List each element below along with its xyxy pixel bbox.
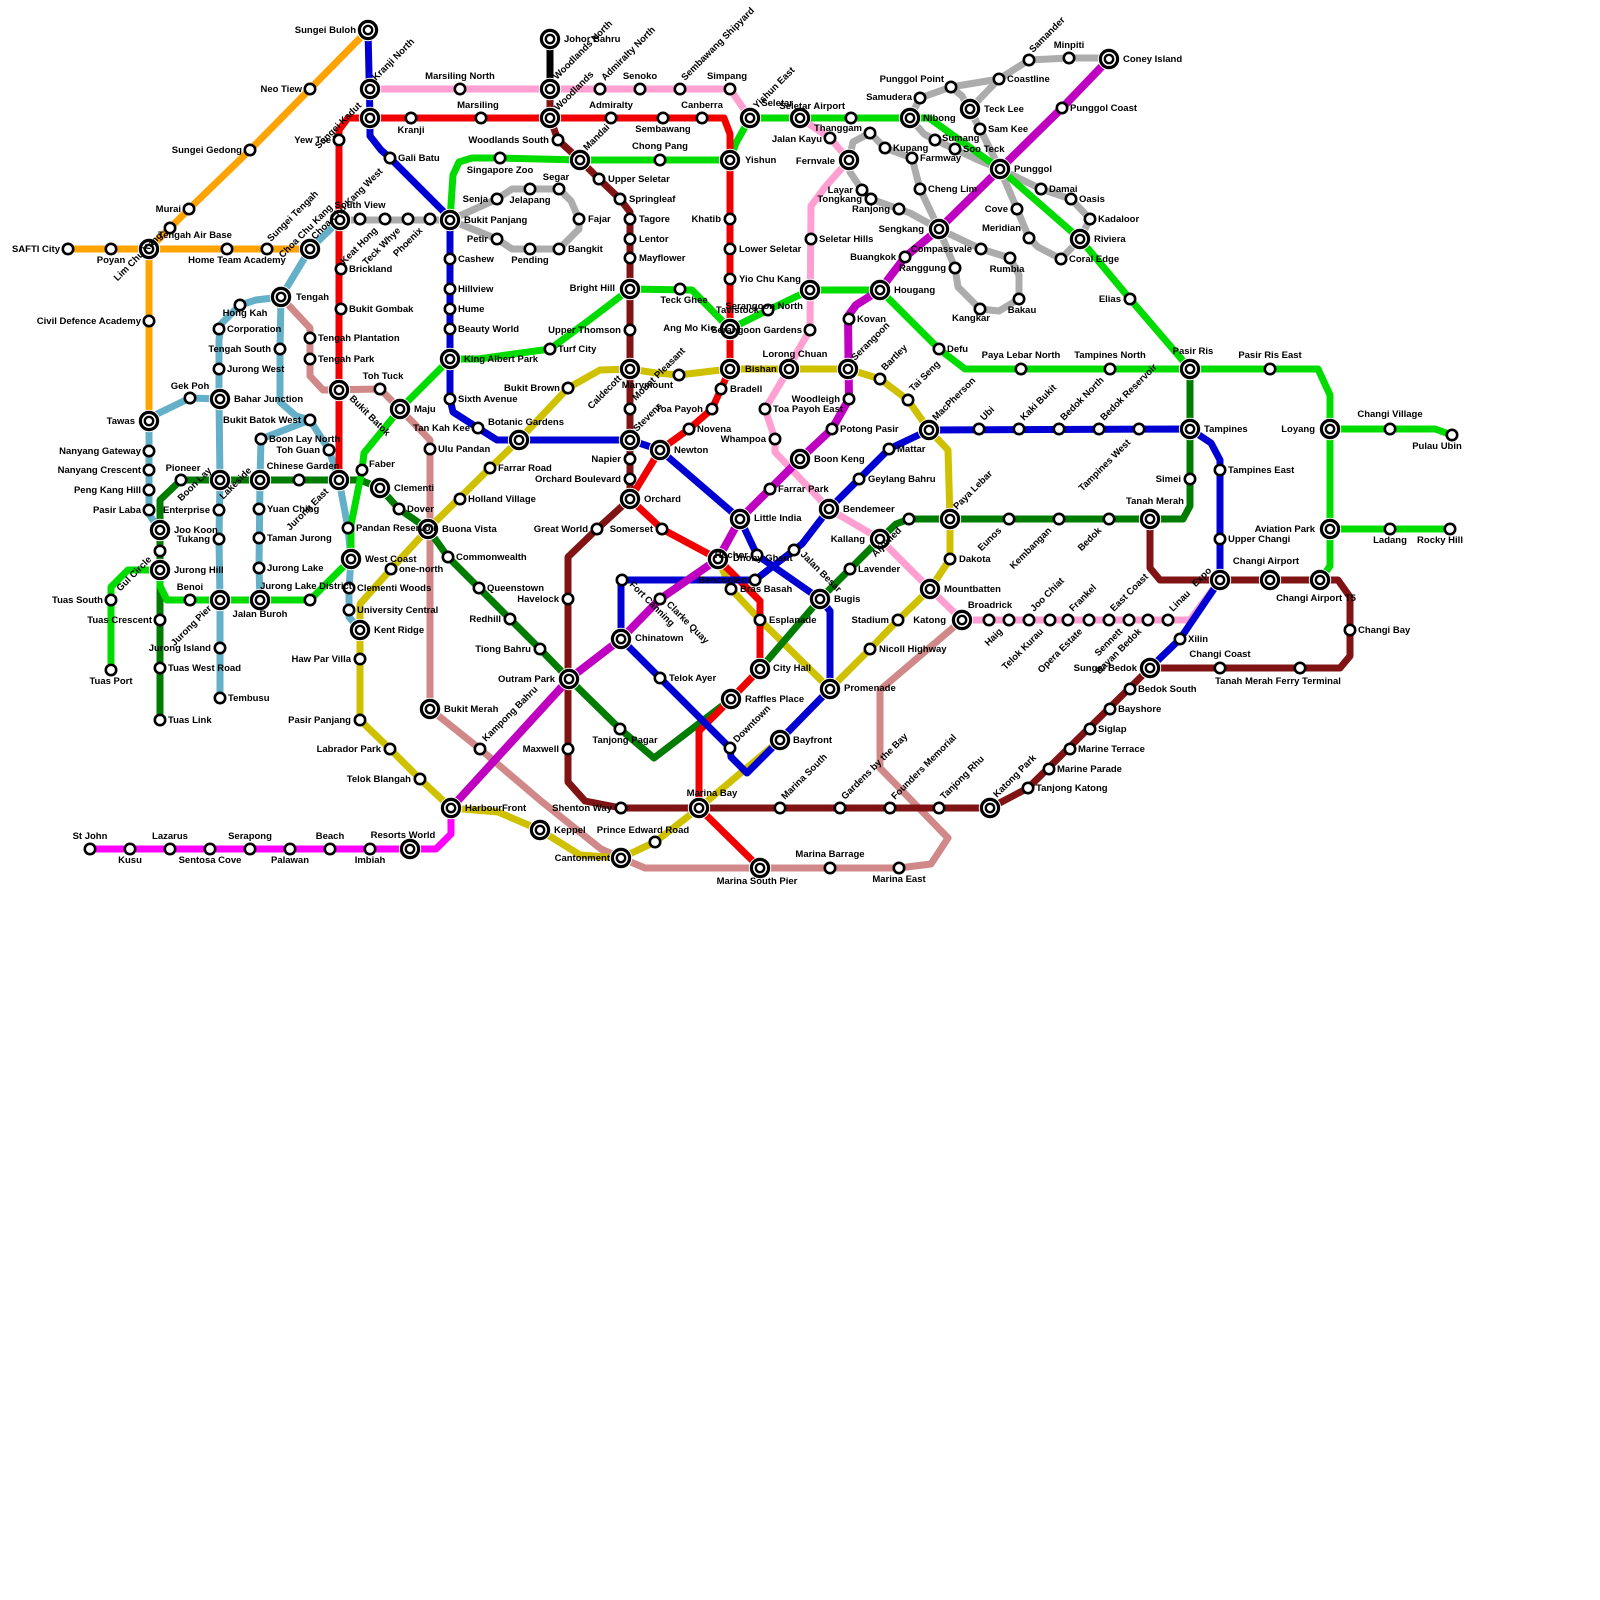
station-nanyang-crescent[interactable] [144, 465, 154, 475]
station-label-teck-lee: Teck Lee [984, 104, 1024, 115]
station-tampines[interactable] [1179, 418, 1201, 440]
station-outram-park[interactable] [558, 668, 580, 690]
station-pandan-reservoir[interactable] [343, 523, 353, 533]
station-admiralty-north[interactable] [595, 84, 605, 94]
station-jurong-pier[interactable] [209, 589, 231, 611]
station-tuas-crescent[interactable] [155, 615, 165, 625]
station-farrar-road[interactable] [485, 463, 495, 473]
station-tanjong-rhu[interactable] [934, 803, 944, 813]
station-tagore[interactable] [625, 214, 635, 224]
station-buangkok[interactable] [900, 252, 910, 262]
station-sungei-gedong[interactable] [245, 145, 255, 155]
interchange-marker-inner-ring [844, 365, 852, 373]
station-marker [63, 244, 73, 254]
station-lentor[interactable] [625, 234, 635, 244]
station-dakota[interactable] [945, 554, 955, 564]
station-lavender[interactable] [845, 564, 855, 574]
station-holland-village[interactable] [455, 494, 465, 504]
station-label-geylang-bahru: Geylang Bahru [868, 474, 936, 485]
station-kent-ridge[interactable] [349, 619, 371, 641]
station-marine-terrace[interactable] [1065, 744, 1075, 754]
station-peng-kang-hill[interactable] [144, 485, 154, 495]
station-marsiling-north[interactable] [455, 84, 465, 94]
station-esplanade[interactable] [755, 615, 765, 625]
station-benoi[interactable] [185, 595, 195, 605]
station-bedok-south[interactable] [1125, 684, 1135, 694]
station-punggol-point[interactable] [946, 82, 956, 92]
station-oasis[interactable] [1066, 194, 1076, 204]
station-orchard[interactable] [619, 488, 641, 510]
station-jurong-lake-district[interactable] [305, 595, 315, 605]
station-pasir-laba[interactable] [144, 505, 154, 515]
station-serangoon-gardens[interactable] [805, 325, 815, 335]
station-broadrick[interactable] [984, 615, 994, 625]
station-ranggung[interactable] [950, 263, 960, 273]
station-haig[interactable] [1004, 615, 1014, 625]
station-teck-whye[interactable] [403, 214, 413, 224]
station-home-team-academy[interactable] [222, 244, 232, 254]
station-joo-koon[interactable] [149, 519, 171, 541]
station-tanah-merah[interactable] [1139, 508, 1161, 530]
station-changi-airport[interactable] [1259, 569, 1281, 591]
station-haw-par-villa[interactable] [355, 654, 365, 664]
station-seletar-airport[interactable] [846, 113, 856, 123]
station-jurong-lake[interactable] [254, 563, 264, 573]
station-redhill[interactable] [505, 614, 515, 624]
station-ladang[interactable] [1385, 524, 1395, 534]
station-paya-lebar-north[interactable] [1016, 364, 1026, 374]
station-hougang[interactable] [869, 279, 891, 301]
station-marymount[interactable] [674, 370, 684, 380]
station-tanjong-pagar[interactable] [615, 724, 625, 734]
station-tampines-east[interactable] [1215, 465, 1225, 475]
station-tengah-park[interactable] [305, 354, 315, 364]
station-bayfront[interactable] [769, 729, 791, 751]
station-aviation-park[interactable] [1319, 518, 1341, 540]
station-defu[interactable] [934, 344, 944, 354]
station-lorong-chuan[interactable] [778, 358, 800, 380]
station-changi-village[interactable] [1385, 424, 1395, 434]
station-bukit-panjang[interactable] [439, 209, 461, 231]
station-toh-guan[interactable] [324, 445, 334, 455]
station-yuan-ching[interactable] [254, 504, 264, 514]
station-napier[interactable] [625, 454, 635, 464]
station-pulau-ubin[interactable] [1447, 430, 1457, 440]
station-bedok-north[interactable] [1054, 424, 1064, 434]
station-south-view[interactable] [355, 214, 365, 224]
station-sungei-tengah[interactable] [262, 244, 272, 254]
station-havelock[interactable] [563, 594, 573, 604]
station-maju[interactable] [389, 398, 411, 420]
station-tanjong-katong[interactable] [1023, 783, 1033, 793]
station-university-central[interactable] [344, 605, 354, 615]
station-one-north[interactable] [386, 564, 396, 574]
station-changi-bay[interactable] [1345, 625, 1355, 635]
station-label-bukit-brown: Bukit Brown [504, 383, 560, 394]
station-label-tengah: Tengah [296, 292, 329, 303]
station-queenstown[interactable] [474, 583, 484, 593]
station-palawan[interactable] [285, 844, 295, 854]
station-kadaloor[interactable] [1085, 214, 1095, 224]
station-springleaf[interactable] [615, 194, 625, 204]
station-sungei-kadut[interactable] [359, 107, 381, 129]
station-label-marsiling: Marsiling [457, 100, 499, 111]
station-marker [1085, 724, 1095, 734]
station-bayan-bedok[interactable] [1143, 615, 1153, 625]
station-potong-pasir[interactable] [827, 424, 837, 434]
station-kaki-bukit[interactable] [1014, 424, 1024, 434]
station-geylang-bahru[interactable] [854, 474, 864, 484]
station-label-poyan: Poyan [97, 255, 126, 266]
station-xilin[interactable] [1175, 634, 1185, 644]
station-label-bras-basah: Bras Basah [740, 584, 792, 595]
station-cove[interactable] [1012, 204, 1022, 214]
station-telok-blangah[interactable] [415, 774, 425, 784]
station-neo-tiew[interactable] [305, 84, 315, 94]
station-kembangan[interactable] [1054, 514, 1064, 524]
station-kampong-bahru[interactable] [475, 744, 485, 754]
station-eunos[interactable] [1004, 514, 1014, 524]
station-whampoa[interactable] [770, 434, 780, 444]
station-stadium[interactable] [893, 615, 903, 625]
station-yio-chu-kang[interactable] [725, 274, 735, 284]
station-little-india[interactable] [729, 508, 751, 530]
station-sixth-avenue[interactable] [445, 394, 455, 404]
station-cantonment[interactable] [610, 847, 632, 869]
station-bangkit[interactable] [554, 244, 564, 254]
station-thanggam[interactable] [865, 128, 875, 138]
station-marker [262, 244, 272, 254]
station-rumbia[interactable] [1005, 253, 1015, 263]
station-murai[interactable] [184, 204, 194, 214]
station-punggol[interactable] [989, 158, 1011, 180]
station-bedok-reservoir[interactable] [1094, 424, 1104, 434]
station-orchard-boulevard[interactable] [625, 474, 635, 484]
station-teck-lee[interactable] [959, 98, 981, 120]
station-hume[interactable] [445, 304, 455, 314]
station-civil-defence-academy[interactable] [144, 316, 154, 326]
station-marine-parade[interactable] [1044, 764, 1054, 774]
station-segar[interactable] [554, 184, 564, 194]
station-upper-changi[interactable] [1215, 534, 1225, 544]
station-tiong-bahru[interactable] [535, 644, 545, 654]
station-fernvale[interactable] [838, 149, 860, 171]
station-pasir-panjang[interactable] [355, 715, 365, 725]
station-pasir-ris-east[interactable] [1265, 364, 1275, 374]
station-tai-seng[interactable] [903, 395, 913, 405]
station-upper-seletar[interactable] [594, 174, 604, 184]
station-tuas-south[interactable] [106, 595, 116, 605]
station-cashew[interactable] [445, 254, 455, 264]
station-marsiling[interactable] [476, 113, 486, 123]
station-chinese-garden[interactable] [294, 475, 304, 485]
station-label-pasir-ris: Pasir Ris [1173, 346, 1214, 357]
station-frankel[interactable] [1063, 615, 1073, 625]
station-bukit-gombak[interactable] [336, 304, 346, 314]
station-opera-estate[interactable] [1084, 615, 1094, 625]
station-tongkang[interactable] [866, 194, 876, 204]
station-lazarus[interactable] [165, 844, 175, 854]
station-bartley[interactable] [875, 374, 885, 384]
station-gali-batu[interactable] [385, 153, 395, 163]
station-singapore-zoo[interactable] [495, 153, 505, 163]
station-johor-bahru[interactable] [539, 28, 561, 50]
station-tampines-north[interactable] [1105, 364, 1115, 374]
station-kovan[interactable] [844, 314, 854, 324]
station-fort-canning[interactable] [617, 575, 627, 585]
station-bukit-merah[interactable] [419, 698, 441, 720]
station-nibong[interactable] [899, 107, 921, 129]
station-king-albert-park[interactable] [439, 348, 461, 370]
station-poyan[interactable] [106, 244, 116, 254]
station-kusu[interactable] [125, 844, 135, 854]
station-taman-jurong[interactable] [254, 533, 264, 543]
station-mattar[interactable] [884, 444, 894, 454]
station-keppel[interactable] [529, 819, 551, 841]
station-corporation[interactable] [214, 324, 224, 334]
station-simpang[interactable] [725, 84, 735, 94]
station-tanah-merah-ferry-terminal[interactable] [1295, 663, 1305, 673]
station-label-coral-edge: Coral Edge [1069, 254, 1119, 265]
station-punggol-coast[interactable] [1057, 103, 1067, 113]
station-sentosa-cove[interactable] [205, 844, 215, 854]
station-serapong[interactable] [245, 844, 255, 854]
station-seletar-hills[interactable] [806, 234, 816, 244]
station-label-maxwell: Maxwell [523, 744, 559, 755]
station-rocky-hill[interactable] [1445, 524, 1455, 534]
station-woodleigh[interactable] [844, 394, 854, 404]
station-novena[interactable] [684, 424, 694, 434]
station-senja[interactable] [492, 194, 502, 204]
station-minpiti[interactable] [1064, 53, 1074, 63]
station-east-coast[interactable] [1104, 615, 1114, 625]
station-farrar-park[interactable] [765, 484, 775, 494]
station-marina-barrage[interactable] [825, 863, 835, 873]
station-west-coast[interactable] [340, 548, 362, 570]
station-label-marsiling-north: Marsiling North [425, 71, 495, 82]
station-chong-pang[interactable] [655, 155, 665, 165]
interchange-marker-inner-ring [335, 476, 343, 484]
station-downtown[interactable] [725, 743, 735, 753]
station-label-tengah-air-base: Tengah Air Base [158, 230, 232, 241]
station-meridian[interactable] [1024, 233, 1034, 243]
station-tampines-west[interactable] [1134, 424, 1144, 434]
station-coastline[interactable] [994, 74, 1004, 84]
station-riviera[interactable] [1069, 228, 1091, 250]
station-jurong-island[interactable] [215, 643, 225, 653]
station-promenade[interactable] [819, 678, 841, 700]
station-bukit-brown[interactable] [563, 383, 573, 393]
station-bendemeer[interactable] [818, 498, 840, 520]
station-damai[interactable] [1036, 184, 1046, 194]
station-tengah-south[interactable] [275, 344, 285, 354]
station-tengah[interactable] [270, 286, 292, 308]
station-harbourfront[interactable] [440, 797, 462, 819]
station-farmway[interactable] [907, 153, 917, 163]
station-compassvale[interactable] [976, 244, 986, 254]
station-labrador-park[interactable] [385, 744, 395, 754]
station-keat-hong[interactable] [380, 214, 390, 224]
station-turf-city[interactable] [545, 344, 555, 354]
station-jurong-west[interactable] [214, 364, 224, 374]
station-mayflower[interactable] [625, 253, 635, 263]
station-toa-payoh[interactable] [707, 404, 717, 414]
station-beach[interactable] [325, 844, 335, 854]
station-hillview[interactable] [445, 284, 455, 294]
station-label-jalan-buroh: Jalan Buroh [233, 609, 288, 620]
station-upper-thomson[interactable] [625, 325, 635, 335]
station-beauty-world[interactable] [445, 324, 455, 334]
station-mountbatten[interactable] [919, 578, 941, 600]
station-maxwell[interactable] [563, 744, 573, 754]
station-canberra[interactable] [697, 113, 707, 123]
station-tuas-link[interactable] [155, 715, 165, 725]
station-imbiah[interactable] [365, 844, 375, 854]
station-telok-ayer[interactable] [655, 673, 665, 683]
station-prince-edward-road[interactable] [650, 837, 660, 847]
station-marina-bay[interactable] [688, 797, 710, 819]
station-nicoll-highway[interactable] [865, 644, 875, 654]
station-khatib[interactable] [725, 214, 735, 224]
station-botanic-gardens[interactable] [508, 429, 530, 451]
station-toa-payoh-east[interactable] [760, 404, 770, 414]
station-bahar-junction[interactable] [209, 388, 231, 410]
station-ulu-pandan[interactable] [425, 444, 435, 454]
station-great-world[interactable] [592, 524, 602, 534]
station-mount-pleasant[interactable] [625, 404, 635, 414]
station-dover[interactable] [394, 504, 404, 514]
station-sumang[interactable] [930, 135, 940, 145]
station-bradell[interactable] [716, 384, 726, 394]
station-sengkang[interactable] [928, 218, 950, 240]
station-jalan-buroh[interactable] [249, 589, 271, 611]
station-sungei-buloh[interactable] [357, 19, 379, 41]
station-sungei-bedok[interactable] [1139, 657, 1161, 679]
station-label-sam-kee: Sam Kee [988, 124, 1028, 135]
station-senoko[interactable] [635, 84, 645, 94]
station-shenton-way[interactable] [616, 803, 626, 813]
station-enterprise[interactable] [214, 505, 224, 515]
station-nanyang-gateway[interactable] [144, 446, 154, 456]
station-simei[interactable] [1185, 474, 1195, 484]
station-jurong-east[interactable] [328, 469, 350, 491]
station-st-john[interactable] [85, 844, 95, 854]
station-marker [615, 194, 625, 204]
station-teck-ghee[interactable] [675, 284, 685, 294]
station-bright-hill[interactable] [619, 278, 641, 300]
station-katong[interactable] [951, 609, 973, 631]
station-bugis[interactable] [809, 588, 831, 610]
station-admiralty[interactable] [606, 113, 616, 123]
station-kranji[interactable] [406, 113, 416, 123]
station-tuas-port[interactable] [106, 665, 116, 675]
station-linau[interactable] [1163, 615, 1173, 625]
station-boon-keng[interactable] [789, 448, 811, 470]
station-coral-edge[interactable] [1056, 254, 1066, 264]
station-pasir-ris[interactable] [1179, 358, 1201, 380]
station-marker [866, 194, 876, 204]
station-bukit-batok-west[interactable] [305, 415, 315, 425]
station-bishan[interactable] [719, 358, 741, 380]
station-jalan-kayu[interactable] [825, 133, 835, 143]
station-label-serapong: Serapong [228, 831, 272, 842]
station-caldecott[interactable] [619, 358, 641, 380]
station-toh-tuck[interactable] [375, 384, 385, 394]
station-chinatown[interactable] [610, 628, 632, 650]
station-sennett[interactable] [1124, 615, 1134, 625]
station-gul-circle[interactable] [155, 546, 165, 556]
station-ubi[interactable] [974, 424, 984, 434]
station-boon-lay-north[interactable] [256, 434, 266, 444]
station-raffles-place[interactable] [720, 688, 742, 710]
station-bakau[interactable] [1014, 294, 1024, 304]
station-ranjong[interactable] [894, 204, 904, 214]
station-woodlands-south[interactable] [553, 135, 563, 145]
station-yishun[interactable] [719, 149, 741, 171]
station-cheng-lim[interactable] [915, 184, 925, 194]
station-founders-memorial[interactable] [885, 803, 895, 813]
station-pioneer[interactable] [176, 475, 186, 485]
station-samander[interactable] [1024, 55, 1034, 65]
station-somerset[interactable] [657, 524, 667, 534]
station-changi-coast[interactable] [1215, 663, 1225, 673]
station-resorts-world[interactable] [399, 838, 421, 860]
station-sembawang-shipyard[interactable] [675, 84, 685, 94]
station-commonwealth[interactable] [443, 552, 453, 562]
station-bedok[interactable] [1104, 514, 1114, 524]
station-label-civil-defence-academy: Civil Defence Academy [37, 316, 142, 327]
station-samudera[interactable] [915, 93, 925, 103]
station-joo-chiat[interactable] [1024, 615, 1034, 625]
station-marker [144, 446, 154, 456]
station-lower-seletar[interactable] [725, 244, 735, 254]
station-gardens-by-the-bay[interactable] [835, 803, 845, 813]
station-tawas[interactable] [138, 410, 160, 432]
station-city-hall[interactable] [749, 658, 771, 680]
station-tan-kah-kee[interactable] [473, 423, 483, 433]
station-gek-poh[interactable] [185, 393, 195, 403]
station-tuas-west-road[interactable] [155, 663, 165, 673]
station-aljunied[interactable] [904, 514, 914, 524]
station-marina-east[interactable] [894, 863, 904, 873]
station-fajar[interactable] [574, 214, 584, 224]
station-newton[interactable] [649, 439, 671, 461]
station-changi-airport-t5[interactable] [1309, 569, 1331, 591]
station-phoenix[interactable] [425, 214, 435, 224]
station-serangoon-north[interactable] [799, 279, 821, 301]
station-jelapang[interactable] [525, 184, 535, 194]
station-sembawang[interactable] [658, 113, 668, 123]
station-label-marine-parade: Marine Parade [1057, 764, 1122, 775]
station-marina-south[interactable] [775, 803, 785, 813]
station-siglap[interactable] [1085, 724, 1095, 734]
station-tengah-plantation[interactable] [305, 333, 315, 343]
station-bayshore[interactable] [1105, 704, 1115, 714]
station-label-neo-tiew: Neo Tiew [260, 84, 302, 95]
station-loyang[interactable] [1319, 418, 1341, 440]
station-coney-island[interactable] [1098, 48, 1120, 70]
station-tembusu[interactable] [215, 693, 225, 703]
station-pending[interactable] [525, 244, 535, 254]
station-kupang[interactable] [880, 143, 890, 153]
station-elias[interactable] [1125, 294, 1135, 304]
station-telok-kurau[interactable] [1045, 615, 1055, 625]
station-clementi[interactable] [369, 477, 391, 499]
station-bukit-batok[interactable] [328, 379, 350, 401]
station-safti-city[interactable] [63, 244, 73, 254]
station-faber[interactable] [357, 465, 367, 475]
station-petir[interactable] [492, 234, 502, 244]
